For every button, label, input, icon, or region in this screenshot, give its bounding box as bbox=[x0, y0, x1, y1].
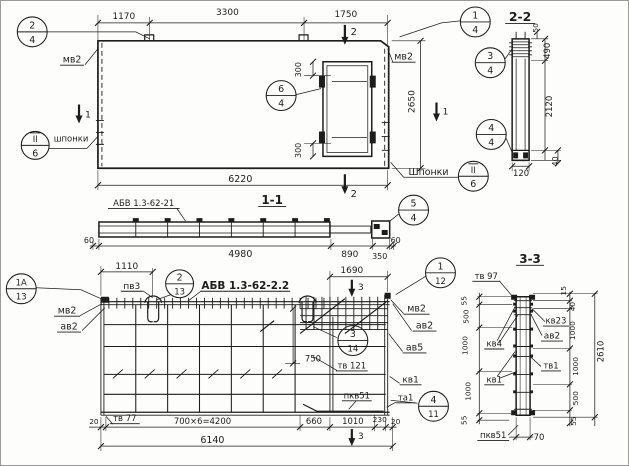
dim-60-right-11: 60 bbox=[391, 236, 401, 245]
label-tv121: тв 121 bbox=[337, 360, 366, 370]
title-section-2-2: 2-2 bbox=[509, 9, 531, 24]
dim-500-right: 500 bbox=[571, 391, 580, 405]
callout-4-11-bottom-text: 11 bbox=[428, 409, 439, 419]
callout-3-14: 314 bbox=[338, 326, 368, 356]
callout-1-12-top-text: 1 bbox=[437, 261, 443, 272]
callout-II-6-left-bottom-text: 6 bbox=[32, 148, 38, 159]
dim-660: 660 bbox=[306, 416, 322, 426]
dim-4980: 4980 bbox=[228, 249, 252, 260]
label-tv77: тв 77 bbox=[113, 413, 136, 423]
label-ta1: та1 bbox=[398, 392, 413, 402]
callout-2-13-bottom-text: 13 bbox=[174, 287, 185, 297]
dim-120: 120 bbox=[513, 168, 529, 178]
callout-II-6-right: II6 bbox=[458, 161, 488, 191]
dim-300-door-top: 300 bbox=[294, 62, 303, 77]
dim-1690: 1690 bbox=[340, 266, 363, 276]
cut-3-bottom-num: 3 bbox=[358, 432, 364, 442]
dim-890: 890 bbox=[341, 250, 358, 260]
dim-1000-right-2: 1000 bbox=[571, 357, 580, 376]
dim-60-left-11: 60 bbox=[84, 236, 94, 245]
callout-1-12-bottom-text: 12 bbox=[435, 276, 446, 286]
dim-3300: 3300 bbox=[216, 8, 239, 18]
dim-20-right: 20 bbox=[391, 417, 401, 426]
callout-4-4: 44 bbox=[476, 119, 506, 149]
callout-5-4-bottom-text: 4 bbox=[411, 213, 417, 224]
dim-350: 350 bbox=[372, 252, 387, 261]
callout-4-4-top-text: 4 bbox=[488, 123, 494, 134]
dim-55-left-top: 55 bbox=[459, 296, 468, 306]
callout-2-4-bottom-text: 4 bbox=[29, 35, 35, 46]
dim-2610: 2610 bbox=[596, 341, 606, 363]
dim-750: 750 bbox=[305, 353, 321, 363]
callout-2-4: 24 bbox=[17, 17, 47, 47]
dim-55-right: 55 bbox=[569, 416, 578, 426]
dim-490: 490 bbox=[542, 43, 552, 59]
callout-3-14-top-text: 3 bbox=[350, 329, 356, 340]
dim-2120: 2120 bbox=[544, 96, 554, 118]
dim-1750: 1750 bbox=[334, 10, 357, 20]
drawing-canvas: 241464II63444II6542131А13112314411 11703… bbox=[1, 1, 628, 465]
dim-300-door-bottom: 300 bbox=[294, 143, 303, 158]
callout-1-4-bottom-text: 4 bbox=[472, 25, 478, 36]
callout-2-4-top-text: 2 bbox=[29, 20, 35, 31]
dim-230: 230 bbox=[373, 415, 387, 424]
label-pv3: пв3 bbox=[123, 282, 140, 292]
dim-6140: 6140 bbox=[200, 435, 224, 446]
dim-70: 70 bbox=[534, 432, 545, 442]
dim-20-left: 20 bbox=[89, 417, 99, 426]
cut-2-top-num: 2 bbox=[351, 27, 357, 38]
label-tv97: тв 97 bbox=[475, 271, 498, 281]
label-mv2-bot-left: мв2 bbox=[58, 306, 77, 317]
callout-6-4-bottom-text: 4 bbox=[278, 99, 284, 110]
title-section-3-3: 3-3 bbox=[519, 252, 541, 266]
label-mark-abv-21: АБВ 1.3-62-21 bbox=[113, 198, 174, 208]
dim-55-left-bottom: 55 bbox=[459, 415, 468, 425]
dim-1110: 1110 bbox=[115, 262, 138, 272]
label-shponki-right: Шпонки bbox=[408, 167, 448, 178]
dim-1170: 1170 bbox=[112, 12, 135, 22]
label-mark-abv-22: АБВ 1.3-62-2.2 bbox=[201, 280, 289, 292]
callout-II-6-left: II6 bbox=[21, 131, 49, 159]
callout-II-6-right-top-text: II bbox=[471, 165, 476, 175]
callout-2-13: 213 bbox=[166, 270, 194, 298]
dim-1000-left-1: 1000 bbox=[460, 336, 469, 355]
dim-6220: 6220 bbox=[228, 174, 252, 185]
callout-3-4-top-text: 3 bbox=[487, 51, 493, 62]
callout-1A-13: 1А13 bbox=[6, 274, 36, 304]
dim-1000-left-2: 1000 bbox=[463, 382, 472, 401]
label-av2-33: ав2 bbox=[544, 332, 560, 342]
label-av2-bot-left: ав2 bbox=[60, 322, 77, 333]
title-section-1-1: 1-1 bbox=[261, 193, 283, 207]
label-pkv51-bottom: пкв51 bbox=[344, 390, 370, 400]
dim-15-right: 15 bbox=[559, 286, 568, 296]
callout-3-4: 34 bbox=[475, 48, 505, 78]
label-pkv51-33: пкв51 bbox=[480, 430, 506, 440]
callout-2-13-top-text: 2 bbox=[177, 272, 183, 283]
callout-4-4-bottom-text: 4 bbox=[488, 137, 494, 148]
engineering-drawing-sheet: 241464II63444II6542131А13112314411 11703… bbox=[0, 0, 629, 466]
label-mv2-top-left: мв2 bbox=[63, 55, 82, 66]
callout-4-11: 411 bbox=[419, 391, 449, 421]
callout-5-4-top-text: 5 bbox=[411, 199, 417, 210]
callout-1A-13-bottom-text: 13 bbox=[16, 292, 27, 302]
label-kv1-bottom: кв1 bbox=[402, 375, 418, 385]
callout-1-12: 112 bbox=[426, 258, 456, 288]
label-kv23: кв23 bbox=[546, 316, 567, 326]
cut-3-top-num: 3 bbox=[358, 283, 364, 293]
callout-II-6-left-top-text: II bbox=[33, 134, 38, 144]
label-mv2-top-right: мв2 bbox=[394, 52, 413, 63]
dim-40-22: 40 bbox=[551, 156, 560, 166]
label-mv2-bot-right: мв2 bbox=[407, 304, 426, 315]
dim-50: 50 bbox=[531, 23, 540, 33]
dim-1010: 1010 bbox=[342, 416, 364, 426]
label-kv4: кв4 bbox=[486, 339, 501, 349]
label-shponki-left: шпонки bbox=[54, 133, 89, 143]
label-av5: ав5 bbox=[406, 342, 423, 353]
callout-1A-13-top-text: 1А bbox=[16, 277, 27, 287]
callout-6-4: 64 bbox=[266, 81, 296, 111]
label-kv1-33: кв1 bbox=[486, 374, 501, 384]
callout-II-6-right-bottom-text: 6 bbox=[470, 179, 476, 190]
label-av2-bot-right: ав2 bbox=[416, 321, 433, 332]
callout-3-4-bottom-text: 4 bbox=[487, 66, 493, 77]
dim-40-right: 40 bbox=[568, 302, 577, 312]
dim-1000-right-1: 1000 bbox=[568, 321, 577, 340]
cut-2-bottom-num: 2 bbox=[351, 189, 357, 200]
callout-5-4: 54 bbox=[399, 195, 429, 225]
callout-4-11-top-text: 4 bbox=[430, 395, 436, 406]
dim-2650: 2650 bbox=[408, 90, 418, 113]
callout-6-4-top-text: 6 bbox=[278, 84, 284, 95]
cut-1-right-num: 1 bbox=[443, 108, 449, 118]
callout-1-4: 14 bbox=[460, 7, 490, 37]
callout-1-4-top-text: 1 bbox=[472, 10, 478, 21]
label-tv1: тв1 bbox=[543, 360, 558, 370]
dim-700x6: 700×6=4200 bbox=[174, 416, 231, 426]
cut-1-left-num: 1 bbox=[85, 110, 91, 120]
dim-500-left: 500 bbox=[461, 309, 470, 323]
callout-3-14-bottom-text: 14 bbox=[347, 343, 358, 353]
